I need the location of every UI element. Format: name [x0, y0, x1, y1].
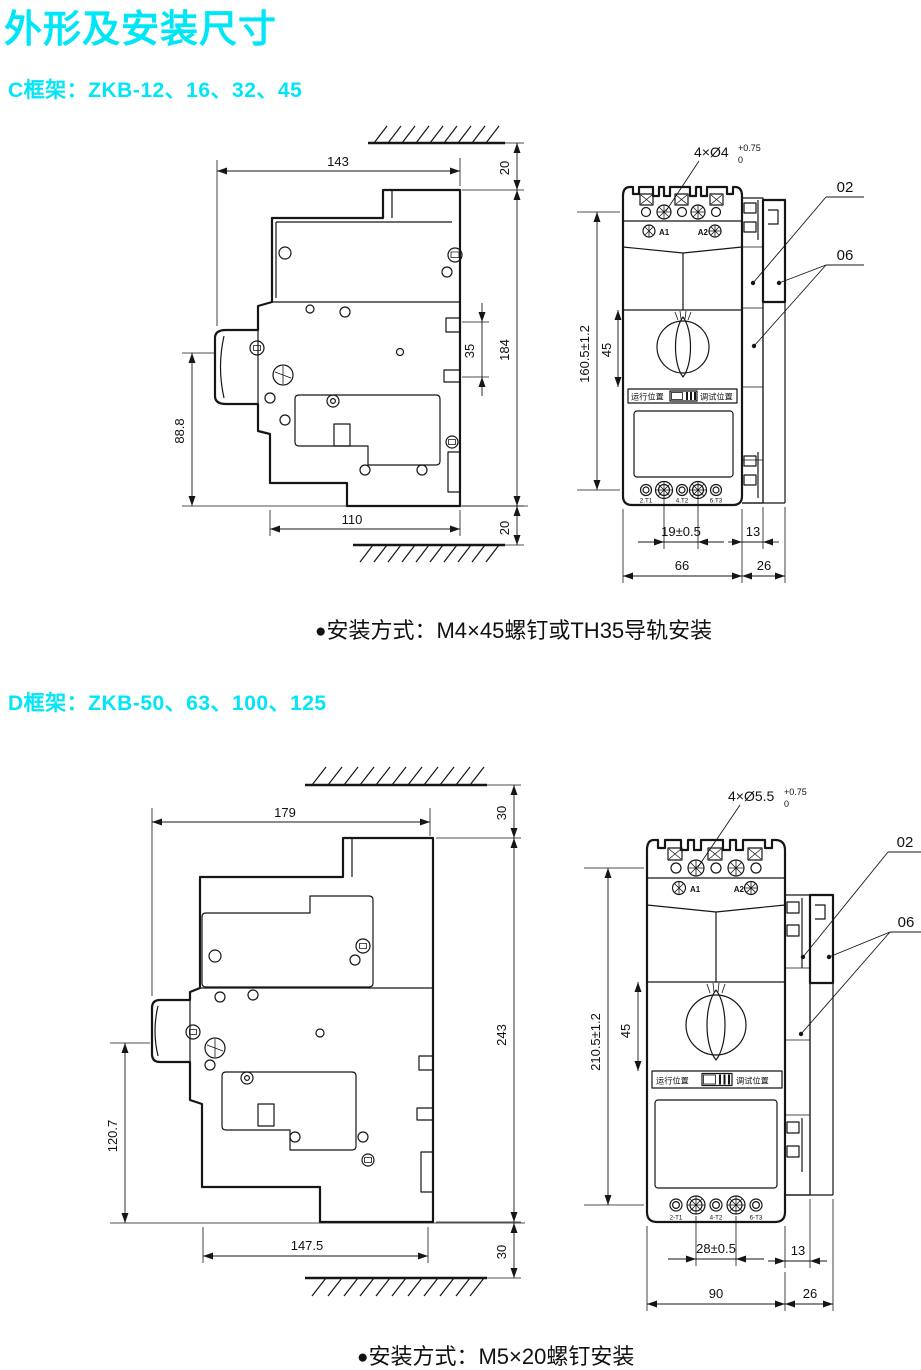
- c-a2-label: A2: [698, 228, 709, 237]
- d-coil-terminals: A1 A2: [673, 882, 758, 895]
- dim-c-side-rail: 35: [462, 344, 477, 358]
- floor-hatch: [353, 545, 524, 562]
- d-mounting-note: ●安装方式：M5×20螺钉安装: [357, 1339, 634, 1370]
- c-bottom-terminals: [641, 482, 722, 499]
- c-hole-tol-up: +0.75: [738, 143, 761, 153]
- dim-c-front-side-width: 26: [757, 558, 771, 573]
- c-hole-label: 4×Ø4: [694, 144, 729, 160]
- dim-d-front-width: 90: [709, 1286, 723, 1301]
- floor-hatch: [305, 1278, 521, 1296]
- d-knob: [647, 905, 785, 1060]
- d-t2-label: 4-T2: [710, 1215, 723, 1222]
- c-label-window: [634, 411, 733, 477]
- d-front-body: [647, 840, 785, 1222]
- dim-d-front-height: 210.5±1.2: [588, 1013, 603, 1071]
- dim-c-side-lower: 88.8: [172, 418, 187, 443]
- dim-d-front-pitch: 28±0.5: [696, 1241, 736, 1256]
- dim-d-side-gap-bottom: 30: [494, 1245, 509, 1259]
- c-side-details: [221, 190, 463, 492]
- dim-c-front-knob: 45: [599, 343, 614, 357]
- c-t1-label: 2.T1: [640, 498, 653, 505]
- dim-c-front-height: 160.5±1.2: [577, 325, 592, 383]
- d-mounting-note-text: 安装方式：M5×20螺钉安装: [368, 1344, 634, 1369]
- dim-c-side-gap-bottom: 20: [497, 521, 512, 535]
- d-hole-label: 4×Ø5.5: [728, 788, 775, 804]
- c-position-slider: 运行位置 调试位置: [628, 389, 737, 403]
- c-side-dimensions: 143 20 184 35 88.8 110 20: [172, 143, 528, 545]
- c-knob: [623, 247, 742, 377]
- ceiling-hatch: [305, 767, 487, 785]
- d-a1-label: A1: [690, 885, 701, 894]
- d-hole-tol-dn: 0: [784, 799, 789, 809]
- dim-c-side-width-top: 143: [327, 154, 349, 169]
- d-test-position-label: 调试位置: [736, 1076, 769, 1086]
- c-top-terminals: [623, 205, 742, 221]
- c-hole-tol-dn: 0: [738, 155, 743, 165]
- d-front-view: A1 A2 运行位置 调试位置: [584, 787, 921, 1311]
- d-a2-label: A2: [734, 885, 745, 894]
- c-test-position-label: 调试位置: [700, 392, 733, 402]
- bullet-icon: ●: [315, 621, 326, 642]
- c-a1-label: A1: [659, 228, 670, 237]
- dim-d-side-gap-top: 30: [494, 806, 509, 820]
- c-front-body: [623, 187, 742, 505]
- dim-c-front-rail: 13: [746, 524, 760, 539]
- d-front-dimensions: 210.5±1.2 45 28±0.5 13 90 26: [584, 868, 833, 1311]
- d-position-slider: 运行位置 调试位置: [652, 1071, 782, 1088]
- c-mounting-note-text: 安装方式：M4×45螺钉或TH35导轨安装: [326, 618, 712, 643]
- c-top-clamps: [640, 194, 723, 205]
- ceiling-hatch: [368, 126, 505, 143]
- d-side-dimensions: 179 30 243 120.7 147.5 30: [105, 785, 525, 1278]
- c-t3-label: 6.T3: [710, 498, 723, 505]
- d-side-outline: [152, 838, 433, 1222]
- dim-d-side-lower: 120.7: [105, 1120, 120, 1153]
- d-ref-leaders: 02 06: [799, 834, 921, 1036]
- c-t2-label: 4.T2: [676, 498, 689, 505]
- c-run-position-label: 运行位置: [631, 392, 664, 402]
- c-frame-drawing: 143 20 184 35 88.8 110 20: [0, 105, 921, 610]
- c-ref-02: 02: [837, 179, 854, 196]
- page-title: 外形及安装尺寸: [4, 0, 277, 53]
- dim-c-front-pitch: 19±0.5: [661, 524, 701, 539]
- dim-d-side-width-bottom: 147.5: [291, 1238, 324, 1253]
- c-front-view: A1 A2 运行位置 调试位置: [577, 143, 864, 583]
- c-side-view: 143 20 184 35 88.8 110 20: [172, 126, 528, 562]
- bullet-icon: ●: [357, 1347, 368, 1368]
- dim-c-side-height: 184: [497, 339, 512, 361]
- d-side-view: 179 30 243 120.7 147.5 30: [105, 767, 525, 1296]
- d-frame-drawing: 179 30 243 120.7 147.5 30: [0, 730, 921, 1330]
- d-t3-label: 6-T3: [750, 1215, 763, 1222]
- section-header-d-frame: D框架：ZKB-50、63、100、125: [8, 687, 327, 717]
- d-top-clamps: [668, 848, 762, 860]
- c-coil-terminals: A1 A2: [643, 225, 721, 237]
- d-side-modules: [785, 895, 833, 1195]
- dim-d-front-knob: 45: [618, 1024, 633, 1038]
- d-ref-02: 02: [897, 834, 914, 851]
- c-mounting-note: ●安装方式：M4×45螺钉或TH35导轨安装: [315, 613, 712, 645]
- d-top-terminals: [647, 860, 785, 878]
- section-header-c-frame: C框架：ZKB-12、16、32、45: [8, 74, 302, 104]
- d-run-position-label: 运行位置: [656, 1076, 689, 1086]
- dim-d-front-side-width: 26: [803, 1286, 817, 1301]
- d-hole-tol-up: +0.75: [784, 787, 807, 797]
- dim-d-front-rail: 13: [791, 1243, 805, 1258]
- d-bottom-terminals: [670, 1196, 762, 1214]
- d-label-window: [655, 1100, 777, 1188]
- c-side-outline: [215, 190, 460, 506]
- c-side-modules: [742, 198, 785, 503]
- page: 外形及安装尺寸 C框架：ZKB-12、16、32、45: [0, 0, 921, 1370]
- d-t1-label: 2-T1: [670, 1215, 683, 1222]
- c-ref-06: 06: [837, 247, 854, 264]
- dim-c-side-gap-top: 20: [497, 161, 512, 175]
- c-ref-leaders: 02 06: [751, 179, 864, 348]
- dim-c-side-width-bottom: 110: [342, 512, 363, 527]
- dim-d-side-width-top: 179: [274, 805, 296, 820]
- d-ref-06: 06: [898, 914, 915, 931]
- dim-c-front-width: 66: [675, 558, 689, 573]
- d-side-details: [155, 838, 433, 1192]
- dim-d-side-height: 243: [494, 1024, 509, 1046]
